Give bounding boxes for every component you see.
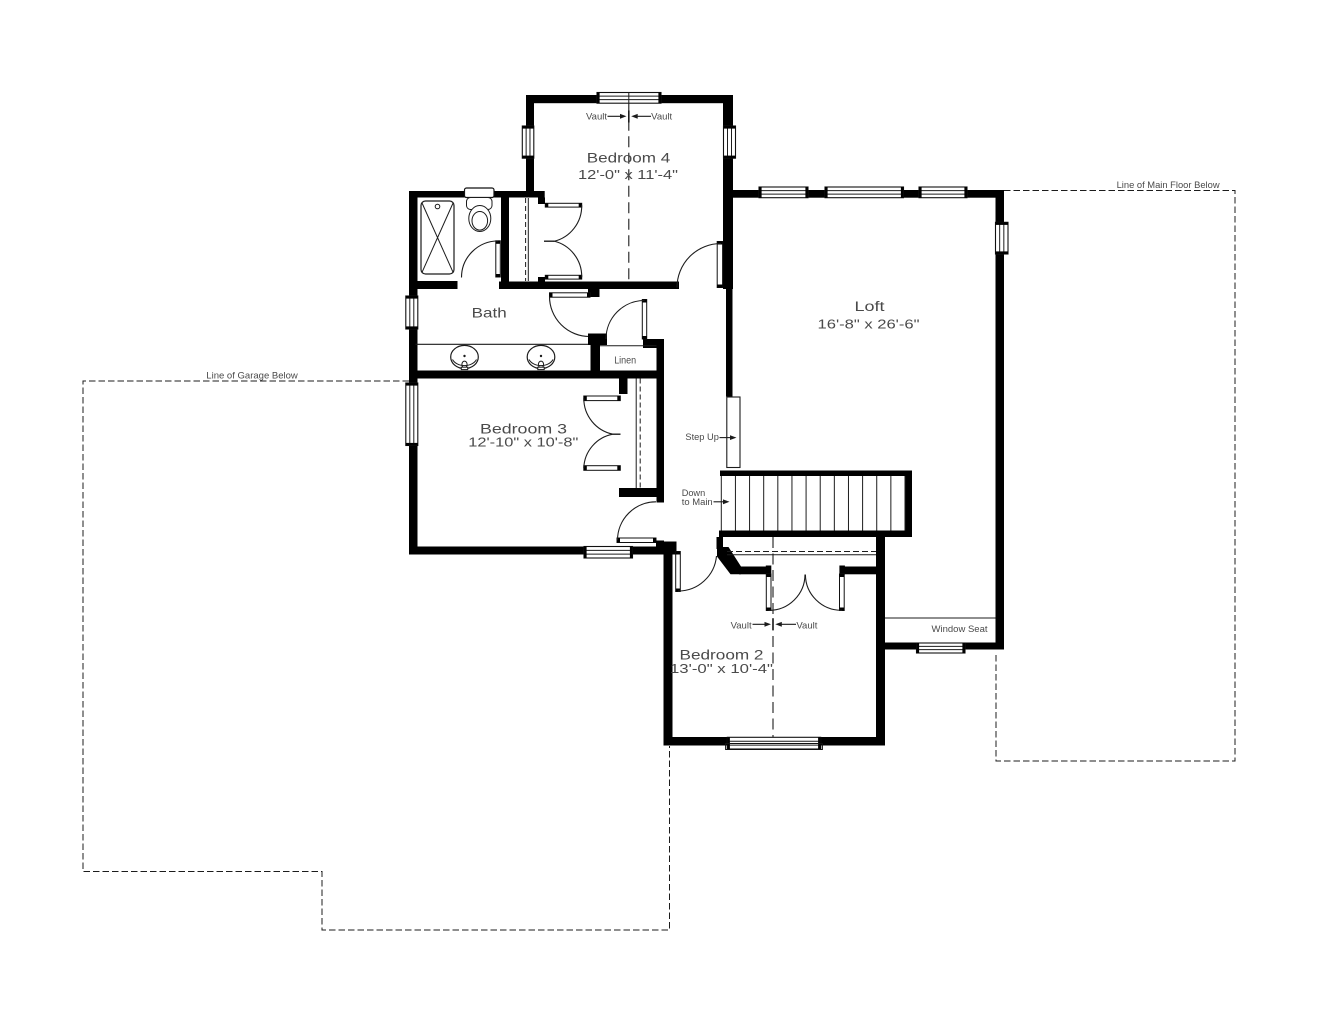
svg-text:Bath: Bath	[472, 305, 507, 321]
svg-text:Vault: Vault	[796, 619, 817, 630]
svg-text:13'-0" x 10'-4": 13'-0" x 10'-4"	[670, 661, 773, 676]
svg-text:12'-10" x 10'-8": 12'-10" x 10'-8"	[468, 435, 578, 450]
svg-text:Linen: Linen	[614, 356, 636, 367]
svg-text:Loft: Loft	[855, 299, 885, 314]
svg-text:Vault: Vault	[731, 619, 752, 630]
svg-text:Window Seat: Window Seat	[932, 624, 988, 635]
svg-text:16'-8" x 26'-6": 16'-8" x 26'-6"	[818, 316, 920, 331]
svg-text:Step Up: Step Up	[685, 432, 719, 443]
svg-text:to Main: to Main	[682, 497, 713, 508]
svg-text:Vault: Vault	[651, 111, 672, 122]
svg-text:Bedroom 4: Bedroom 4	[587, 151, 671, 166]
svg-text:Line of Main Floor Below: Line of Main Floor Below	[1117, 180, 1220, 190]
svg-text:Vault: Vault	[586, 111, 607, 122]
svg-text:Line of Garage Below: Line of Garage Below	[206, 371, 298, 381]
svg-text:12'-0" x 11'-4": 12'-0" x 11'-4"	[578, 167, 678, 182]
